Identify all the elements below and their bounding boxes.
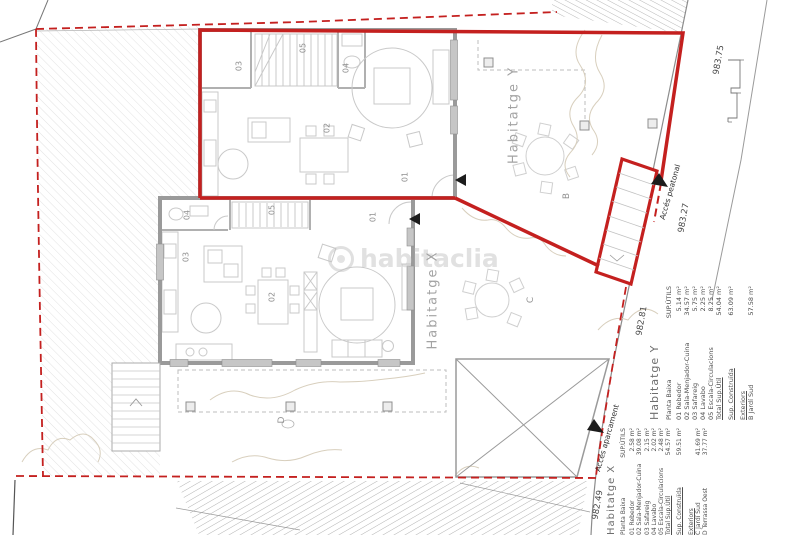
carport bbox=[456, 359, 609, 477]
unit-y-floor bbox=[200, 30, 455, 198]
room-y-01: 01 bbox=[401, 172, 410, 182]
terrace-pergola bbox=[178, 370, 446, 428]
table-row: 04 Lavabo2.25 m² bbox=[699, 286, 707, 420]
street-stair bbox=[596, 159, 657, 284]
table-row: 03 Safareig5.75 m² bbox=[691, 286, 699, 420]
garden-c bbox=[463, 269, 524, 327]
unit-x-title-label: Habitatge X bbox=[426, 250, 441, 349]
hatch-bottom-parcels bbox=[177, 481, 588, 535]
table-x-floor-header: Planta Baixa bbox=[620, 498, 627, 535]
room-x-02: 02 bbox=[268, 292, 277, 302]
room-x-01: 01 bbox=[369, 212, 378, 222]
garden-c-label: C bbox=[526, 297, 536, 303]
room-x-05: 05 bbox=[268, 205, 277, 215]
table-row: 05 Escala-Circulacions8.25 m² bbox=[707, 286, 715, 420]
room-y-05: 05 bbox=[299, 43, 308, 53]
left-garden-stair bbox=[112, 363, 160, 451]
table-x-ext-header: Exteriors bbox=[688, 428, 695, 535]
table-row: 02 Sala-Menjador-Cuina34.57 m² bbox=[683, 286, 691, 420]
watermark-logo-icon bbox=[328, 246, 354, 272]
room-y-02: 02 bbox=[323, 123, 332, 133]
table-y-ext-header: Exteriors bbox=[739, 286, 747, 420]
table-row: D Terrassa Oest37.77 m² bbox=[702, 428, 709, 535]
table-row: 04 Lavabo2.02 m² bbox=[651, 428, 658, 535]
table-y-sup-header: SUP.ÚTILS bbox=[665, 286, 673, 318]
room-y-04: 04 bbox=[342, 63, 351, 73]
table-row: 03 Safareig2.15 m² bbox=[644, 428, 651, 535]
table-row: C Jardí Sud41.69 m² bbox=[695, 428, 702, 535]
room-x-03: 03 bbox=[182, 252, 191, 262]
table-y-floor-header: Planta Baixa bbox=[665, 379, 673, 420]
table-x-sup-header: SUP.ÚTILS bbox=[620, 428, 627, 458]
boundary-step-marker bbox=[728, 60, 740, 122]
table-y-built-row: Sup. Construïda63.09 m² bbox=[727, 286, 735, 420]
table-x-title: Habitatge X bbox=[606, 428, 617, 535]
table-row: 05 Escala-Circulacions2.48 m² bbox=[658, 428, 665, 535]
table-row: B Jardí Sud57.58 m² bbox=[747, 286, 755, 420]
area-table-unit-y: Habitatge Y Planta Baixa SUP.ÚTILS 01 Re… bbox=[648, 286, 762, 420]
table-x-built-row: Sup. Construïda59.51 m² bbox=[676, 428, 683, 535]
watermark: habitaclia bbox=[328, 244, 499, 273]
table-row: 01 Rebedor2.58 m² bbox=[629, 428, 636, 535]
area-table-unit-x: Habitatge X Planta Baixa SUP.ÚTILS 01 Re… bbox=[606, 428, 704, 535]
hatch-top-right-band bbox=[552, 0, 688, 33]
garden-b-label: B bbox=[562, 193, 572, 199]
table-y-title: Habitatge Y bbox=[648, 286, 661, 420]
table-row: 02 Sala-Menjador-Cuina39.08 m² bbox=[636, 428, 643, 535]
table-x-total-row: Total Sup.Útil54.57 m² bbox=[665, 428, 672, 535]
table-y-total-row: Total Sup.Útil54.04 m² bbox=[715, 286, 723, 420]
room-y-03: 03 bbox=[235, 61, 244, 71]
floor-plan-page: habitaclia Habitatge Y Habitatge X 03 05… bbox=[0, 0, 800, 535]
terrace-d-label: D bbox=[277, 417, 287, 424]
unit-y-title-label: Habitatge Y bbox=[507, 66, 522, 164]
table-row: 01 Rebedor5.14 m² bbox=[675, 286, 683, 420]
room-x-04: 04 bbox=[183, 210, 192, 220]
